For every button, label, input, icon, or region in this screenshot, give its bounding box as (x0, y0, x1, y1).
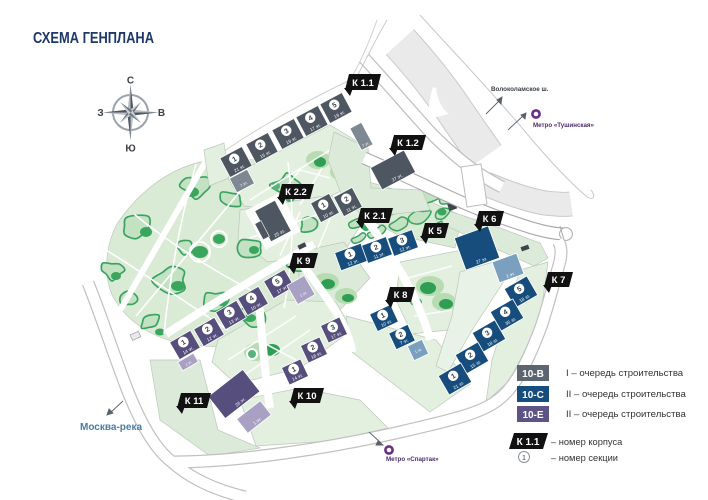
svg-text:– номер секции: – номер секции (551, 453, 618, 463)
svg-text:К 5: К 5 (428, 226, 442, 237)
svg-text:К 11: К 11 (185, 396, 204, 407)
svg-text:Метро «Спартак»: Метро «Спартак» (386, 456, 439, 463)
svg-text:З: З (97, 108, 103, 119)
svg-text:К 1.1: К 1.1 (352, 78, 374, 89)
svg-text:– номер корпуса: – номер корпуса (551, 437, 623, 447)
svg-text:II – очередь строительства: II – очередь строительства (566, 409, 686, 420)
svg-text:1: 1 (522, 455, 526, 462)
svg-text:В: В (158, 108, 165, 119)
svg-text:К 2.2: К 2.2 (285, 187, 307, 198)
svg-text:К 6: К 6 (483, 214, 497, 225)
svg-text:10-Е: 10-Е (522, 410, 543, 421)
svg-text:II – очередь строительства: II – очередь строительства (566, 389, 686, 400)
svg-text:К 8: К 8 (394, 290, 408, 301)
svg-text:К 10: К 10 (297, 391, 316, 402)
svg-text:С: С (127, 76, 134, 87)
svg-text:Метро «Тушинская»: Метро «Тушинская» (533, 122, 595, 129)
svg-text:К 9: К 9 (297, 256, 311, 267)
svg-text:СХЕМА ГЕНПЛАНА: СХЕМА ГЕНПЛАНА (33, 30, 154, 47)
svg-text:К 7: К 7 (552, 275, 566, 286)
svg-text:10-В: 10-В (522, 369, 544, 380)
svg-text:10-С: 10-С (522, 390, 544, 401)
svg-text:Волоколамское ш.: Волоколамское ш. (491, 86, 549, 93)
svg-text:Ю: Ю (125, 144, 135, 155)
svg-text:К 1.2: К 1.2 (397, 138, 419, 149)
svg-text:I – очередь строительства: I – очередь строительства (566, 368, 684, 379)
svg-text:Москва-река: Москва-река (80, 422, 142, 433)
svg-text:К 2.1: К 2.1 (364, 211, 386, 222)
svg-text:К 1.1: К 1.1 (517, 437, 540, 448)
